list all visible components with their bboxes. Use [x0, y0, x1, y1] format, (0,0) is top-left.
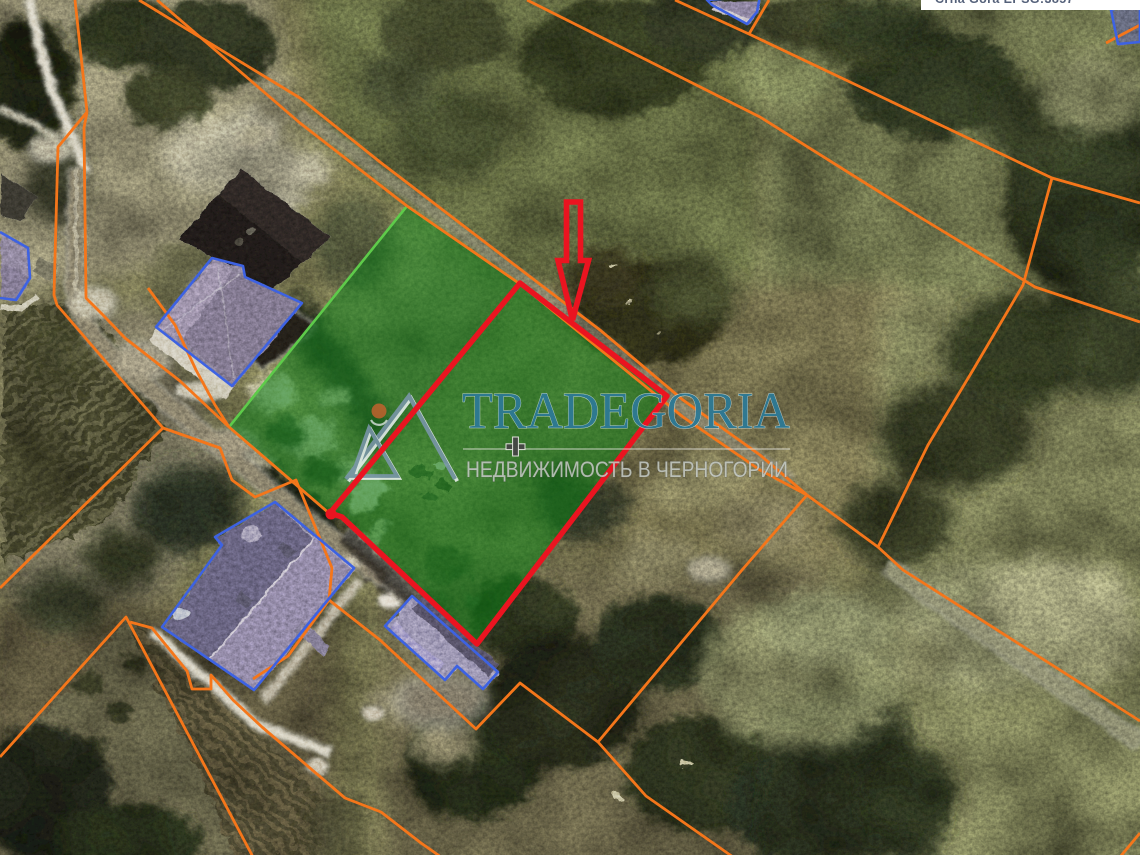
- svg-text:TRADEGORIA: TRADEGORIA: [462, 383, 790, 440]
- svg-text:Crna Gora EPSG:3857: Crna Gora EPSG:3857: [935, 0, 1074, 6]
- svg-text:НЕДВИЖИМОСТЬ В ЧЕРНОГОРИИ: НЕДВИЖИМОСТЬ В ЧЕРНОГОРИИ: [466, 457, 788, 482]
